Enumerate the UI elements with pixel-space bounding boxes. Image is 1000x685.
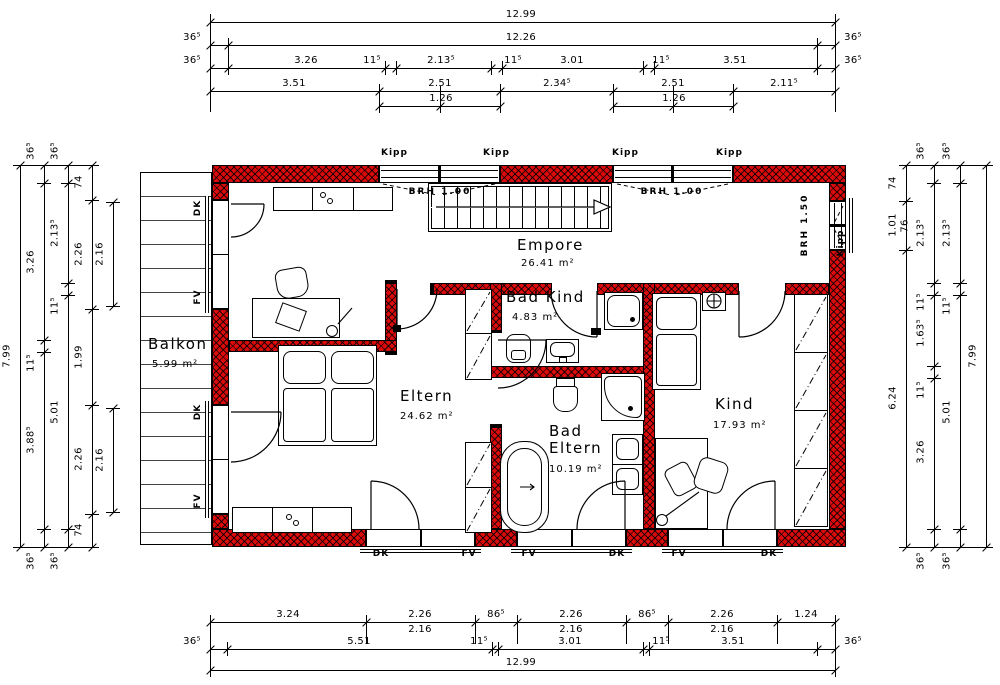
dimension-value: 3.26 xyxy=(294,55,317,66)
door-type-tag: DK xyxy=(609,550,625,560)
witness-line xyxy=(668,616,669,644)
dimension-value: 5.01 xyxy=(50,400,61,423)
dimension-value: 3.51 xyxy=(723,55,746,66)
dimension-value: 11⁵ xyxy=(916,381,927,399)
dimension-line xyxy=(210,649,835,650)
dimension-value: 3.01 xyxy=(560,55,583,66)
dimension-value: 1.24 xyxy=(794,609,817,620)
dimension-value: 1.99 xyxy=(74,345,85,368)
dimension-value: 2.26 xyxy=(408,609,431,620)
sill-height-tag: BRH 1.50 xyxy=(801,194,811,257)
dimension-line xyxy=(68,165,69,547)
dimension-value: 2.26 xyxy=(710,609,733,620)
dimension-value: 2.16 xyxy=(710,624,733,635)
room-name-label: Bad Kind xyxy=(506,289,585,306)
dimension-value: 11⁵ xyxy=(942,297,953,315)
witness-line xyxy=(835,14,836,112)
dimension-value: 3.88⁵ xyxy=(26,426,37,454)
dimension-line xyxy=(210,91,835,92)
dimension-value: 1.26 xyxy=(662,93,685,104)
room-name-label: Eltern xyxy=(400,388,453,405)
dimension-value: 7.99 xyxy=(968,344,979,367)
dimension-value: 2.26 xyxy=(74,447,85,470)
stairs-arrow xyxy=(436,200,610,214)
witness-line xyxy=(733,86,734,112)
dimension-value: 11⁵ xyxy=(363,55,381,66)
dimension-value: 36⁵ xyxy=(26,142,37,160)
dimension-value: 11⁵ xyxy=(470,636,488,647)
room-area-label: 5.99 m² xyxy=(152,359,198,370)
door-type-tag: DK xyxy=(761,550,777,560)
dimension-value: 5.01 xyxy=(942,400,953,423)
dimension-line xyxy=(210,45,835,46)
dimension-value: 3.26 xyxy=(916,440,927,463)
witness-line xyxy=(210,616,211,676)
dimension-value: 5.51 xyxy=(347,636,370,647)
dimension-value: 2.13⁵ xyxy=(916,219,927,247)
witness-line xyxy=(14,165,98,166)
dimension-value: 2.16 xyxy=(95,448,106,471)
sill-height-tag: BRH 1.00 xyxy=(641,188,704,198)
dimension-value: 11⁵ xyxy=(26,354,37,372)
dimension-value: 12.99 xyxy=(506,9,536,20)
dimension-value: 74 xyxy=(888,176,899,189)
door-type-tag: FV xyxy=(194,289,204,304)
dimension-value: 1.01 xyxy=(888,213,899,236)
dimension-value: 36⁵ xyxy=(50,142,61,160)
witness-line xyxy=(517,616,518,644)
witness-line xyxy=(673,86,674,112)
witness-line xyxy=(835,616,836,676)
dimension-value: 2.16 xyxy=(408,624,431,635)
room-name-label: Kind xyxy=(715,396,754,413)
dimension-line xyxy=(210,68,835,69)
dimension-value: 86⁵ xyxy=(487,609,505,620)
door-swing-arcs xyxy=(231,204,785,529)
dimension-line xyxy=(113,202,114,306)
dimension-value: 76 xyxy=(900,219,911,232)
dimension-line xyxy=(960,165,961,547)
dimension-value: 11⁵ xyxy=(50,297,61,315)
witness-line xyxy=(900,547,992,548)
dimension-value: 3.51 xyxy=(721,636,744,647)
witness-line xyxy=(500,86,501,112)
dimension-value: 86⁵ xyxy=(638,609,656,620)
dimension-value: 12.99 xyxy=(506,657,536,668)
window-tag: Kipp xyxy=(483,149,510,159)
dimension-value: 3.51 xyxy=(282,78,305,89)
dimension-value: 11⁵ xyxy=(652,55,670,66)
misc-lines xyxy=(338,294,721,516)
dimension-line xyxy=(210,622,835,623)
door-type-tag: DK xyxy=(194,404,204,420)
witness-line xyxy=(613,86,614,112)
dimension-value: 1.26 xyxy=(429,93,452,104)
dimension-value: 6.24 xyxy=(888,386,899,409)
witness-line xyxy=(900,165,992,166)
dimension-line xyxy=(92,165,93,547)
dimension-value: 36⁵ xyxy=(26,552,37,570)
dimension-value: 36⁵ xyxy=(183,55,201,66)
dimension-line xyxy=(210,22,835,23)
dimension-line xyxy=(113,408,114,512)
dimension-value: 3.26 xyxy=(26,250,37,273)
door-type-tag: FV xyxy=(461,550,476,560)
dimension-value: 74 xyxy=(74,523,85,536)
dimension-value: 2.26 xyxy=(74,242,85,265)
dimension-value: 36⁵ xyxy=(183,636,201,647)
sill-height-tag: BRH 1.00 xyxy=(409,188,472,198)
room-name-label: Balkon xyxy=(148,336,208,353)
dimension-value: 2.16 xyxy=(95,242,106,265)
witness-line xyxy=(440,86,441,112)
dimension-value: 2.13⁵ xyxy=(50,219,61,247)
window-tag: Kipp xyxy=(837,230,847,257)
dimension-value: 36⁵ xyxy=(844,55,862,66)
witness-line xyxy=(379,86,380,112)
dimension-value: 2.13⁵ xyxy=(942,219,953,247)
dimension-value: 2.13⁵ xyxy=(427,55,455,66)
dimension-value: 36⁵ xyxy=(844,636,862,647)
floor-plan-drawing: Balkon5.99 m²Empore26.41 m²Eltern24.62 m… xyxy=(0,0,1000,685)
room-name-label: Bad Eltern xyxy=(549,423,602,456)
witness-line xyxy=(228,40,229,74)
witness-line xyxy=(366,616,367,644)
dimension-value: 36⁵ xyxy=(916,552,927,570)
witness-line xyxy=(817,40,818,74)
dimension-value: 2.11⁵ xyxy=(770,78,798,89)
door-type-tag: FV xyxy=(671,550,686,560)
room-area-label: 24.62 m² xyxy=(400,411,454,422)
dimension-line xyxy=(934,165,935,547)
witness-line xyxy=(777,616,778,644)
dimension-value: 36⁵ xyxy=(942,142,953,160)
dimension-value: 36⁵ xyxy=(942,552,953,570)
witness-line xyxy=(210,14,211,112)
dimension-value: 36⁵ xyxy=(183,32,201,43)
wardrobe-diagonals xyxy=(467,292,826,531)
window-tag: Kipp xyxy=(612,149,639,159)
dimension-value: 2.26 xyxy=(559,609,582,620)
witness-line xyxy=(475,616,476,644)
witness-line xyxy=(14,547,98,548)
door-type-tag: DK xyxy=(194,200,204,216)
dimension-line xyxy=(20,165,21,547)
dimension-value: 36⁵ xyxy=(844,32,862,43)
window-tag: Kipp xyxy=(716,149,743,159)
dimension-value: 11⁵ xyxy=(504,55,522,66)
dimension-value: 11⁵ xyxy=(916,293,927,311)
door-type-tag: DK xyxy=(373,550,389,560)
room-name-label: Empore xyxy=(517,237,584,254)
dimension-value: 12.26 xyxy=(506,32,536,43)
dimension-line xyxy=(44,165,45,547)
dimension-value: 1.63⁵ xyxy=(916,319,927,347)
window-tag: Kipp xyxy=(381,149,408,159)
dimension-value: 7.99 xyxy=(2,344,13,367)
room-area-label: 17.93 m² xyxy=(713,420,767,431)
room-area-label: 4.83 m² xyxy=(512,312,558,323)
room-area-label: 26.41 m² xyxy=(521,258,575,269)
dimension-value: 3.24 xyxy=(276,609,299,620)
door-type-tag: FV xyxy=(194,493,204,508)
room-area-label: 10.19 m² xyxy=(549,464,603,475)
dimension-line xyxy=(986,165,987,547)
dimension-value: 36⁵ xyxy=(50,552,61,570)
dimension-value: 2.16 xyxy=(559,624,582,635)
witness-line xyxy=(626,616,627,644)
dimension-value: 74 xyxy=(74,175,85,188)
door-type-tag: FV xyxy=(521,550,536,560)
dimension-value: 2.34⁵ xyxy=(543,78,571,89)
dimension-line xyxy=(210,670,835,671)
dimension-value: 36⁵ xyxy=(916,142,927,160)
dimension-value: 3.01 xyxy=(558,636,581,647)
